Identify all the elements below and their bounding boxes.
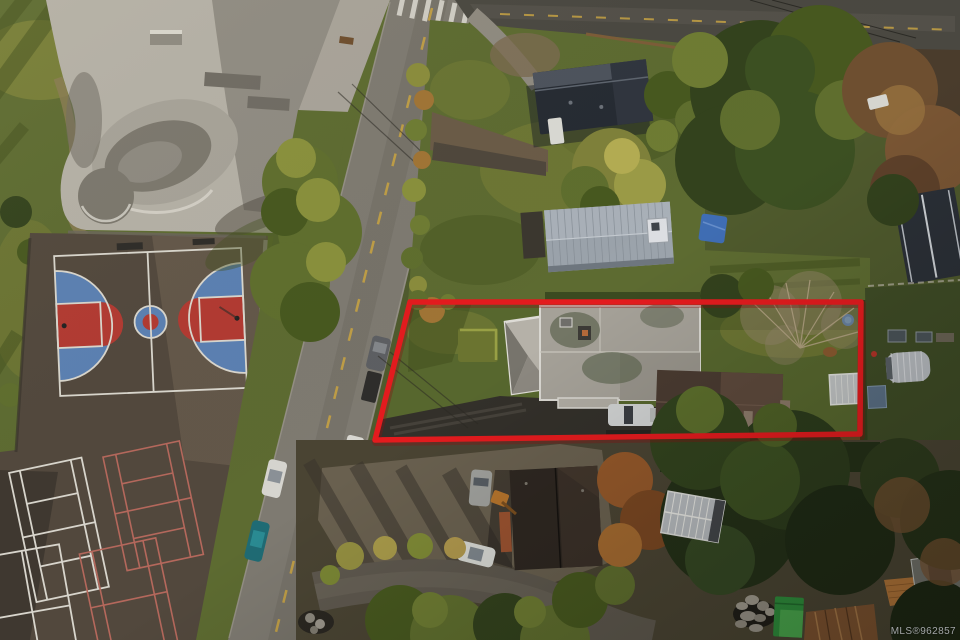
mls-watermark: MLS®962857 — [891, 626, 956, 637]
aerial-photo: MLS®962857 — [0, 0, 960, 640]
aerial-photo-canvas — [0, 0, 960, 640]
vignette-overlay — [0, 0, 960, 640]
